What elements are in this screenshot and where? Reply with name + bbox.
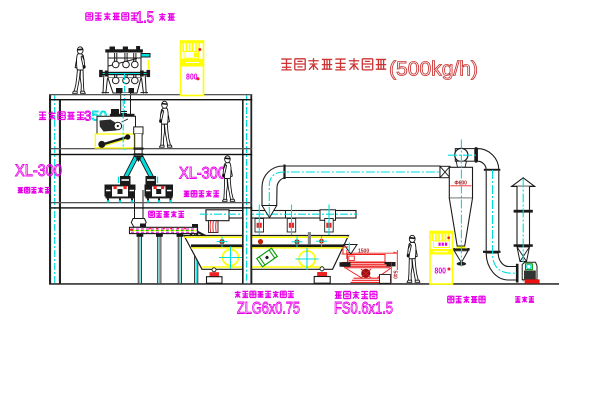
svg-text:ZLG6x0.75: ZLG6x0.75 xyxy=(237,300,300,318)
svg-text:XL-300: XL-300 xyxy=(179,165,226,183)
svg-text:800: 800 xyxy=(435,266,447,275)
svg-text:540: 540 xyxy=(392,271,398,280)
svg-text:XL-300: XL-300 xyxy=(15,162,62,180)
svg-text:(500kg/h): (500kg/h) xyxy=(389,58,478,81)
svg-text:3: 3 xyxy=(84,109,92,124)
svg-text:Φ600: Φ600 xyxy=(455,181,468,187)
svg-text:1500: 1500 xyxy=(358,249,369,255)
svg-text:800: 800 xyxy=(186,72,198,81)
svg-text:1.5: 1.5 xyxy=(136,10,154,27)
svg-text:FS0.6x1.5: FS0.6x1.5 xyxy=(334,300,393,318)
